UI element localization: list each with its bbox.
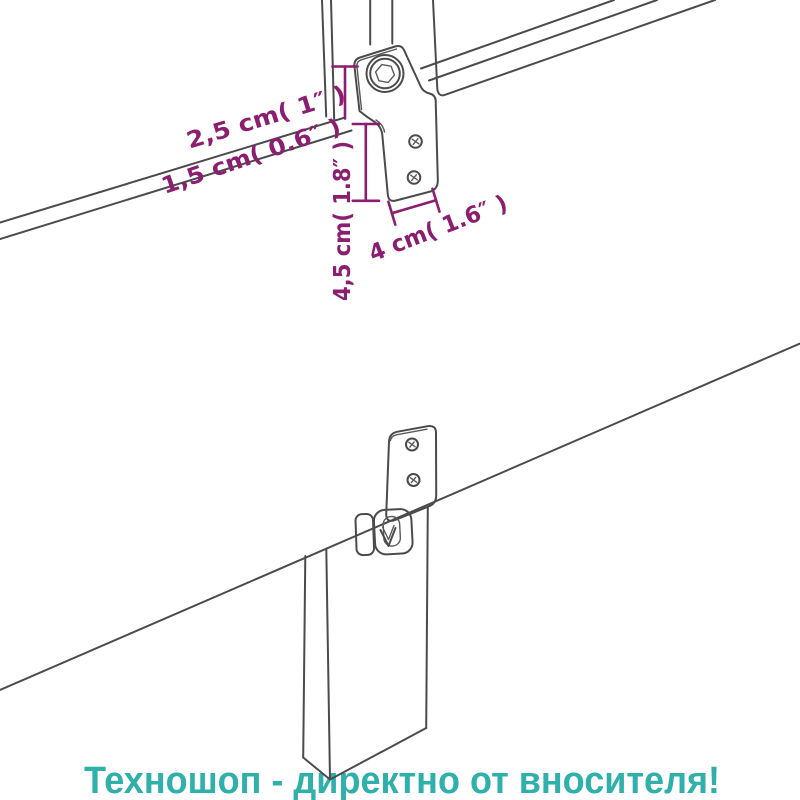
bracket-screw-icon-bottom <box>408 171 421 184</box>
watermark-text: Техношоп - директно от вносителя! <box>84 760 720 800</box>
plate-screw-icon-top <box>406 439 418 451</box>
top-rail-back-edge-line <box>421 0 614 69</box>
plate-screw-icon-bottom <box>408 474 420 486</box>
headboard-bottom-edge-line <box>0 344 800 691</box>
screw-slot <box>411 175 418 181</box>
leg-back-edge-line <box>303 556 305 758</box>
bolt-head-circle <box>370 59 400 89</box>
bolt-hex-socket <box>376 65 395 83</box>
screw-slot <box>412 139 419 145</box>
top-rail-mid-edge-line <box>429 0 657 81</box>
diagram-canvas: Техношоп - директно от вносителя! <box>0 0 800 800</box>
headboard-line-art <box>0 0 800 780</box>
leg-front-left-edge-line <box>326 550 330 780</box>
leg-front-right-edge-line <box>426 507 428 728</box>
screw-slot <box>409 442 415 447</box>
product-dimension-diagram: Техношоп - директно от вносителя! <box>0 0 800 800</box>
bolt-hole-circle <box>367 55 404 92</box>
hex-bolt-icon <box>367 55 404 92</box>
dimension-line-bracket-width <box>392 200 436 213</box>
dimension-label-bracket-drop: 4,5 cm( 1.8″ ) <box>330 141 356 301</box>
bracket-screw-icon-top <box>409 135 422 148</box>
screw-slot <box>410 477 416 482</box>
headboard-leg <box>303 507 428 780</box>
dimension-annotations: 2,5 cm( 1″ ) 1,5 cm( 0.6″ ) 4,5 cm( 1.8″… <box>158 67 511 302</box>
leg-bracket <box>355 426 436 555</box>
